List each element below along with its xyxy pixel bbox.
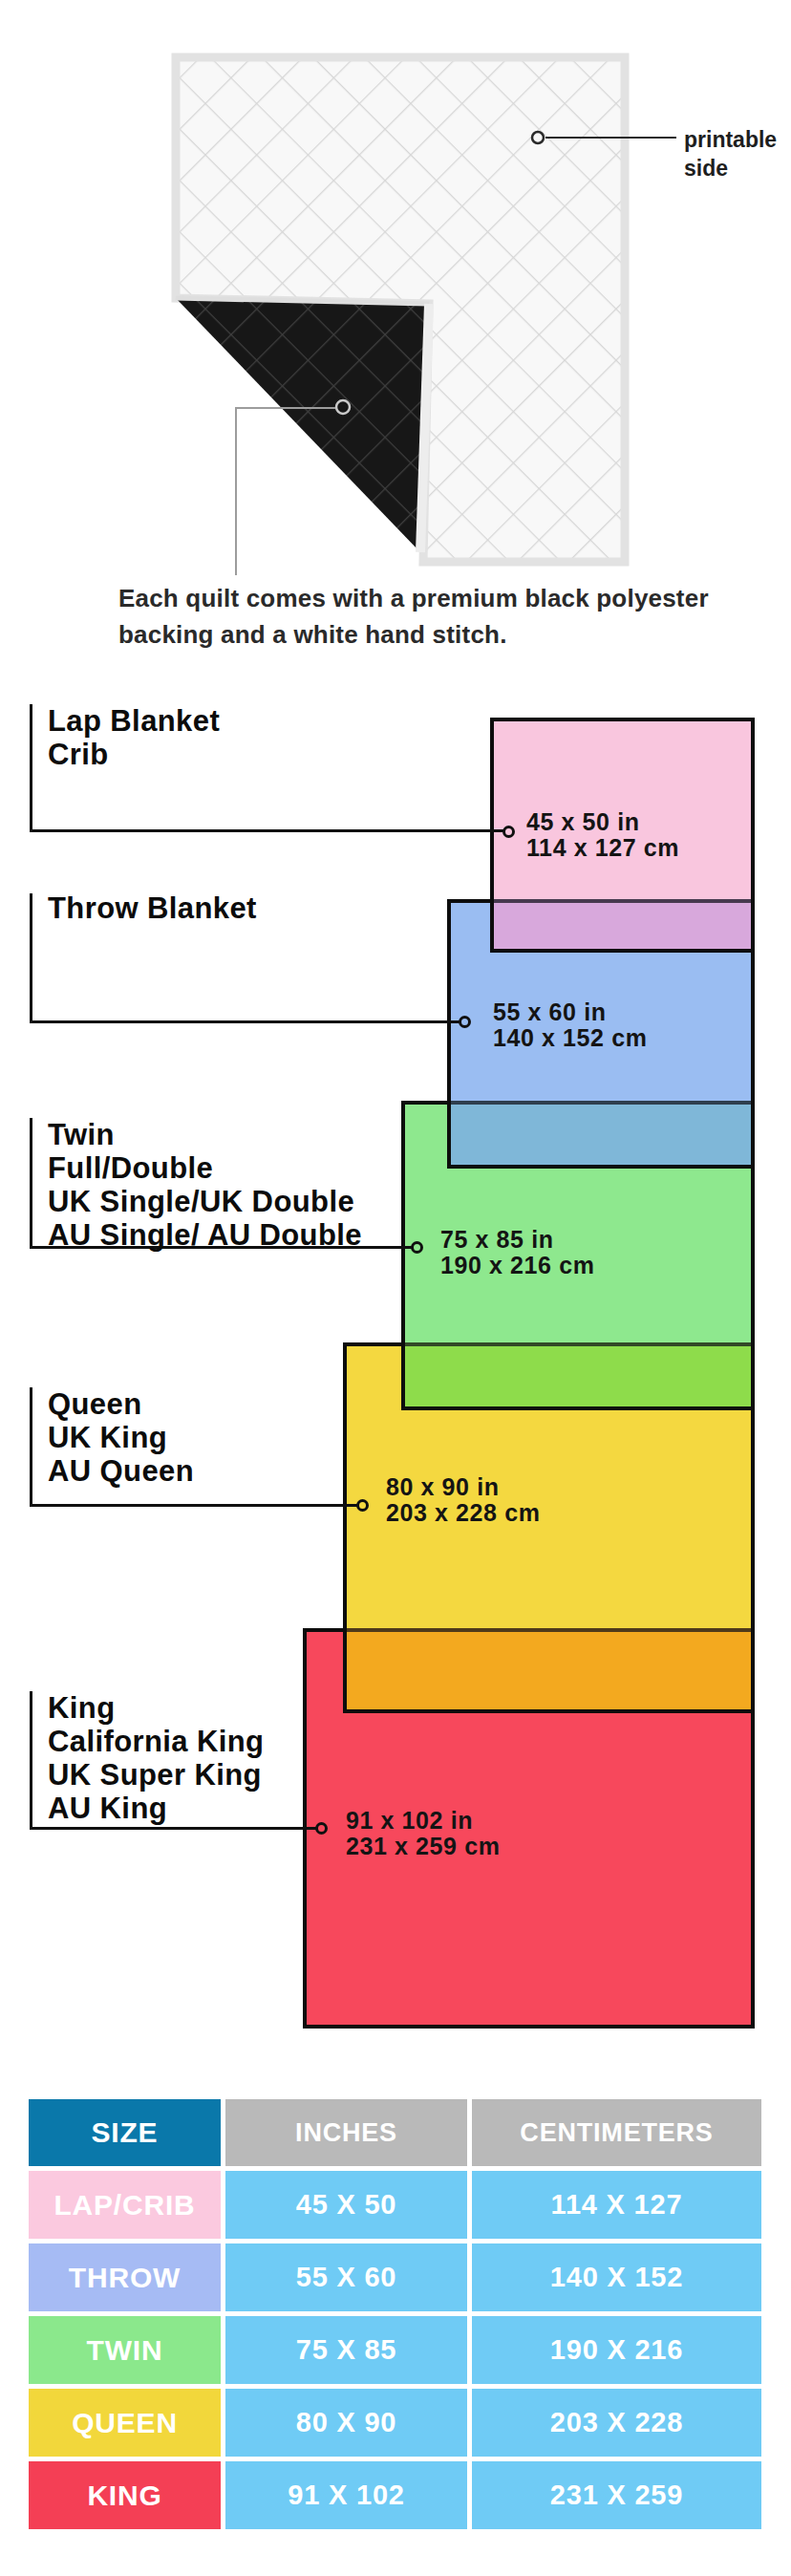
size-label-throw-line1: Throw Blanket xyxy=(48,891,257,925)
size-dims-throw: 55 x 60 in 140 x 152 cm xyxy=(493,999,648,1051)
table-row-label-lap: LAP/CRIB xyxy=(29,2171,221,2239)
size-label-throw: Throw Blanket xyxy=(48,891,257,925)
king-leader-vline xyxy=(30,1691,32,1829)
size-dims-lap-in: 45 x 50 in xyxy=(526,809,679,835)
size-dims-queen: 80 x 90 in 203 x 228 cm xyxy=(386,1474,541,1526)
table-cell-throw-inches: 55 X 60 xyxy=(225,2243,467,2311)
twin-queen-overlap-band xyxy=(405,1342,751,1406)
throw-leader-marker xyxy=(459,1016,471,1028)
table-row-label-king: KING xyxy=(29,2461,221,2529)
throw-leader-hline xyxy=(30,1020,460,1023)
table-cell-twin-inches: 75 X 85 xyxy=(225,2316,467,2384)
size-label-lap: Lap Blanket Crib xyxy=(48,704,220,771)
lap-leader-vline xyxy=(30,704,32,830)
size-label-twin: Twin Full/Double UK Single/UK Double AU … xyxy=(48,1118,362,1252)
size-label-king-line4: AU King xyxy=(48,1792,264,1825)
queen-leader-hline xyxy=(30,1504,358,1507)
size-label-twin-line2: Full/Double xyxy=(48,1151,362,1185)
table-header-inches: INCHES xyxy=(225,2099,467,2166)
lap-leader-marker xyxy=(502,826,515,838)
printable-side-label-line2: side xyxy=(684,154,777,182)
table-row-label-throw: THROW xyxy=(29,2243,221,2311)
size-dims-king: 91 x 102 in 231 x 259 cm xyxy=(346,1808,501,1859)
twin-leader-vline xyxy=(30,1118,32,1248)
table-cell-twin-centimeters: 190 X 216 xyxy=(472,2316,761,2384)
size-label-king: King California King UK Super King AU Ki… xyxy=(48,1691,264,1825)
table-cell-throw-centimeters: 140 X 152 xyxy=(472,2243,761,2311)
size-label-twin-line3: UK Single/UK Double xyxy=(48,1185,362,1218)
size-dims-king-cm: 231 x 259 cm xyxy=(346,1834,501,1859)
throw-leader-vline xyxy=(30,893,32,1022)
table-cell-lap-centimeters: 114 X 127 xyxy=(472,2171,761,2239)
size-label-king-line2: California King xyxy=(48,1725,264,1758)
size-label-king-line1: King xyxy=(48,1691,264,1725)
twin-leader-marker xyxy=(411,1241,423,1254)
size-dims-twin-cm: 190 x 216 cm xyxy=(440,1253,595,1278)
table-cell-lap-inches: 45 X 50 xyxy=(225,2171,467,2239)
infographic-page: printable side Each quilt comes with a p… xyxy=(0,0,791,2576)
table-cell-king-inches: 91 X 102 xyxy=(225,2461,467,2529)
table-row-label-twin: TWIN xyxy=(29,2316,221,2384)
quilt-back-fold xyxy=(176,298,429,552)
size-label-lap-line1: Lap Blanket xyxy=(48,704,220,738)
size-dims-lap: 45 x 50 in 114 x 127 cm xyxy=(526,809,679,861)
size-label-lap-line2: Crib xyxy=(48,738,220,771)
size-label-queen-line1: Queen xyxy=(48,1387,194,1421)
quilt-caption-line2: backing and a white hand stitch. xyxy=(118,616,709,653)
queen-leader-marker xyxy=(356,1499,369,1512)
quilt-caption-line1: Each quilt comes with a premium black po… xyxy=(118,580,709,616)
size-label-twin-line1: Twin xyxy=(48,1118,362,1151)
size-dims-lap-cm: 114 x 127 cm xyxy=(526,835,679,861)
size-dims-queen-in: 80 x 90 in xyxy=(386,1474,541,1500)
table-cell-queen-centimeters: 203 X 228 xyxy=(472,2389,761,2457)
table-header-size: SIZE xyxy=(29,2099,221,2166)
size-dims-twin: 75 x 85 in 190 x 216 cm xyxy=(440,1227,595,1278)
table-row-label-queen: QUEEN xyxy=(29,2389,221,2457)
size-label-twin-line4: AU Single/ AU Double xyxy=(48,1218,362,1252)
lap-leader-hline xyxy=(30,829,504,832)
table-cell-king-centimeters: 231 X 259 xyxy=(472,2461,761,2529)
throw-twin-overlap-band xyxy=(451,1101,751,1165)
size-dims-queen-cm: 203 x 228 cm xyxy=(386,1500,541,1526)
king-leader-marker xyxy=(315,1822,328,1835)
king-leader-hline xyxy=(30,1827,317,1830)
table-cell-queen-inches: 80 X 90 xyxy=(225,2389,467,2457)
size-label-king-line3: UK Super King xyxy=(48,1758,264,1792)
size-label-queen-line2: UK King xyxy=(48,1421,194,1454)
lap-throw-overlap-band xyxy=(494,899,751,949)
queen-king-overlap-band xyxy=(347,1628,751,1709)
queen-leader-vline xyxy=(30,1387,32,1506)
size-table: SIZE INCHES CENTIMETERS LAP/CRIB 45 X 50… xyxy=(29,2099,761,2529)
size-label-queen: Queen UK King AU Queen xyxy=(48,1387,194,1488)
printable-side-label: printable side xyxy=(684,125,777,182)
quilt-caption: Each quilt comes with a premium black po… xyxy=(118,580,709,653)
table-header-centimeters: CENTIMETERS xyxy=(472,2099,761,2166)
size-dims-twin-in: 75 x 85 in xyxy=(440,1227,595,1253)
size-dims-throw-cm: 140 x 152 cm xyxy=(493,1025,648,1051)
printable-side-label-line1: printable xyxy=(684,125,777,154)
quilt-photo-illustration xyxy=(0,0,791,669)
size-dims-throw-in: 55 x 60 in xyxy=(493,999,648,1025)
size-label-queen-line3: AU Queen xyxy=(48,1454,194,1488)
size-dims-king-in: 91 x 102 in xyxy=(346,1808,501,1834)
